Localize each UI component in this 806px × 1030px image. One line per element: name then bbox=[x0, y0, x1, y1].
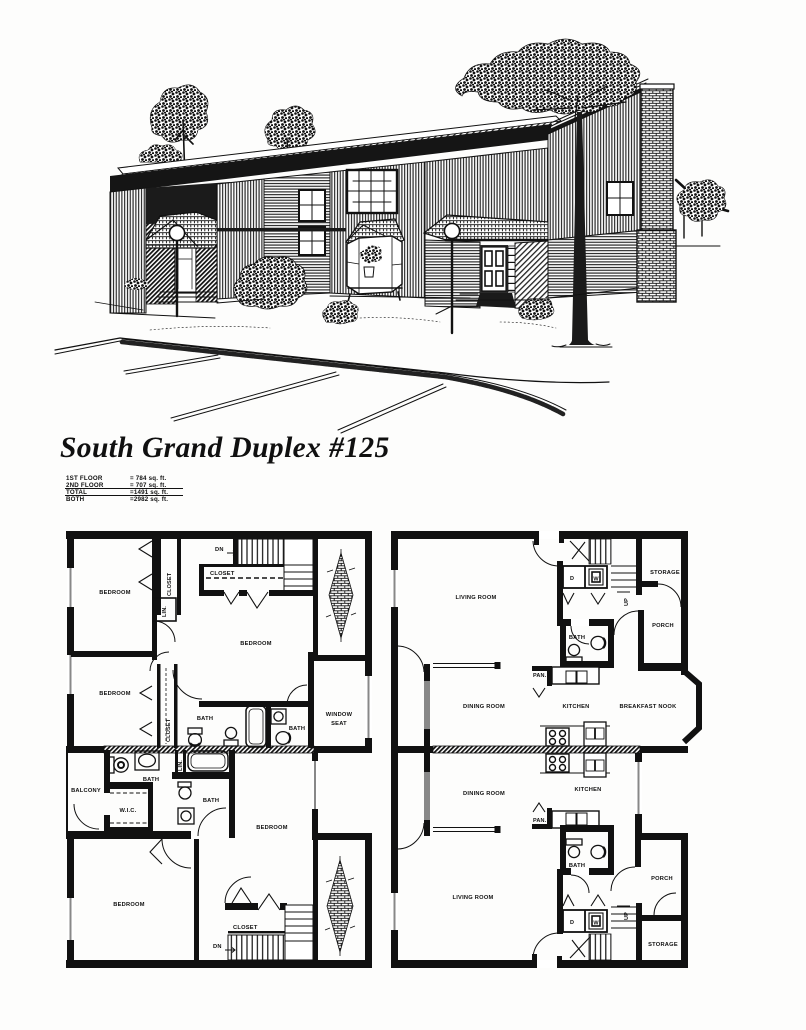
svg-text:=2982 sq. ft.: =2982 sq. ft. bbox=[130, 496, 168, 503]
svg-text:W: W bbox=[593, 921, 599, 927]
svg-text:BEDROOM: BEDROOM bbox=[99, 691, 130, 697]
svg-text:W: W bbox=[593, 577, 599, 583]
svg-text:BEDROOM: BEDROOM bbox=[113, 902, 144, 908]
svg-text:BEDROOM: BEDROOM bbox=[240, 641, 271, 647]
svg-text:PORCH: PORCH bbox=[652, 623, 674, 629]
svg-text:CLOSET: CLOSET bbox=[210, 571, 235, 577]
svg-text:UP: UP bbox=[624, 598, 630, 606]
svg-text:CLOSET: CLOSET bbox=[166, 718, 172, 742]
svg-text:KITCHEN: KITCHEN bbox=[562, 704, 589, 710]
svg-text:UP: UP bbox=[624, 912, 630, 920]
svg-text:SEAT: SEAT bbox=[331, 721, 347, 727]
svg-text:CLOSET: CLOSET bbox=[233, 925, 258, 931]
svg-text:STORAGE: STORAGE bbox=[648, 942, 678, 948]
svg-text:BATH: BATH bbox=[203, 798, 219, 804]
svg-text:= 784 sq. ft.: = 784 sq. ft. bbox=[130, 475, 167, 482]
svg-text:LIN.: LIN. bbox=[162, 606, 168, 617]
svg-text:BATH: BATH bbox=[197, 716, 213, 722]
svg-text:DINING ROOM: DINING ROOM bbox=[463, 791, 505, 797]
svg-text:KITCHEN: KITCHEN bbox=[574, 787, 601, 793]
svg-text:BATH: BATH bbox=[569, 863, 585, 869]
svg-text:South Grand Duplex #125: South Grand Duplex #125 bbox=[60, 432, 390, 464]
svg-text:TOTAL: TOTAL bbox=[66, 489, 87, 496]
svg-text:BOTH: BOTH bbox=[66, 496, 85, 503]
svg-text:LIVING ROOM: LIVING ROOM bbox=[456, 595, 497, 601]
svg-text:LIN.: LIN. bbox=[178, 760, 184, 771]
svg-text:LIVING ROOM: LIVING ROOM bbox=[453, 895, 494, 901]
svg-text:CLOSET: CLOSET bbox=[167, 572, 173, 596]
svg-text:DN: DN bbox=[213, 944, 222, 950]
svg-text:= 707 sq. ft.: = 707 sq. ft. bbox=[130, 482, 167, 489]
svg-text:1ST FLOOR: 1ST FLOOR bbox=[66, 475, 103, 482]
svg-text:BEDROOM: BEDROOM bbox=[99, 590, 130, 596]
svg-text:PAN.: PAN. bbox=[533, 818, 547, 824]
svg-text:WINDOW: WINDOW bbox=[326, 712, 353, 718]
svg-text:2ND FLOOR: 2ND FLOOR bbox=[66, 482, 104, 489]
svg-text:BATH: BATH bbox=[569, 635, 585, 641]
svg-text:D: D bbox=[570, 920, 574, 926]
svg-text:DN: DN bbox=[215, 547, 224, 553]
svg-text:STORAGE: STORAGE bbox=[650, 570, 680, 576]
svg-text:BATH: BATH bbox=[289, 726, 305, 732]
svg-text:BREAKFAST NOOK: BREAKFAST NOOK bbox=[620, 704, 678, 710]
svg-text:PAN.: PAN. bbox=[533, 673, 547, 679]
svg-text:BEDROOM: BEDROOM bbox=[256, 825, 287, 831]
svg-text:D: D bbox=[570, 576, 574, 582]
svg-text:W.I.C.: W.I.C. bbox=[120, 808, 137, 814]
svg-text:BALCONY: BALCONY bbox=[71, 788, 101, 794]
svg-text:PORCH: PORCH bbox=[651, 876, 673, 882]
svg-text:DINING ROOM: DINING ROOM bbox=[463, 704, 505, 710]
svg-text:=1491 sq. ft.: =1491 sq. ft. bbox=[130, 489, 168, 496]
